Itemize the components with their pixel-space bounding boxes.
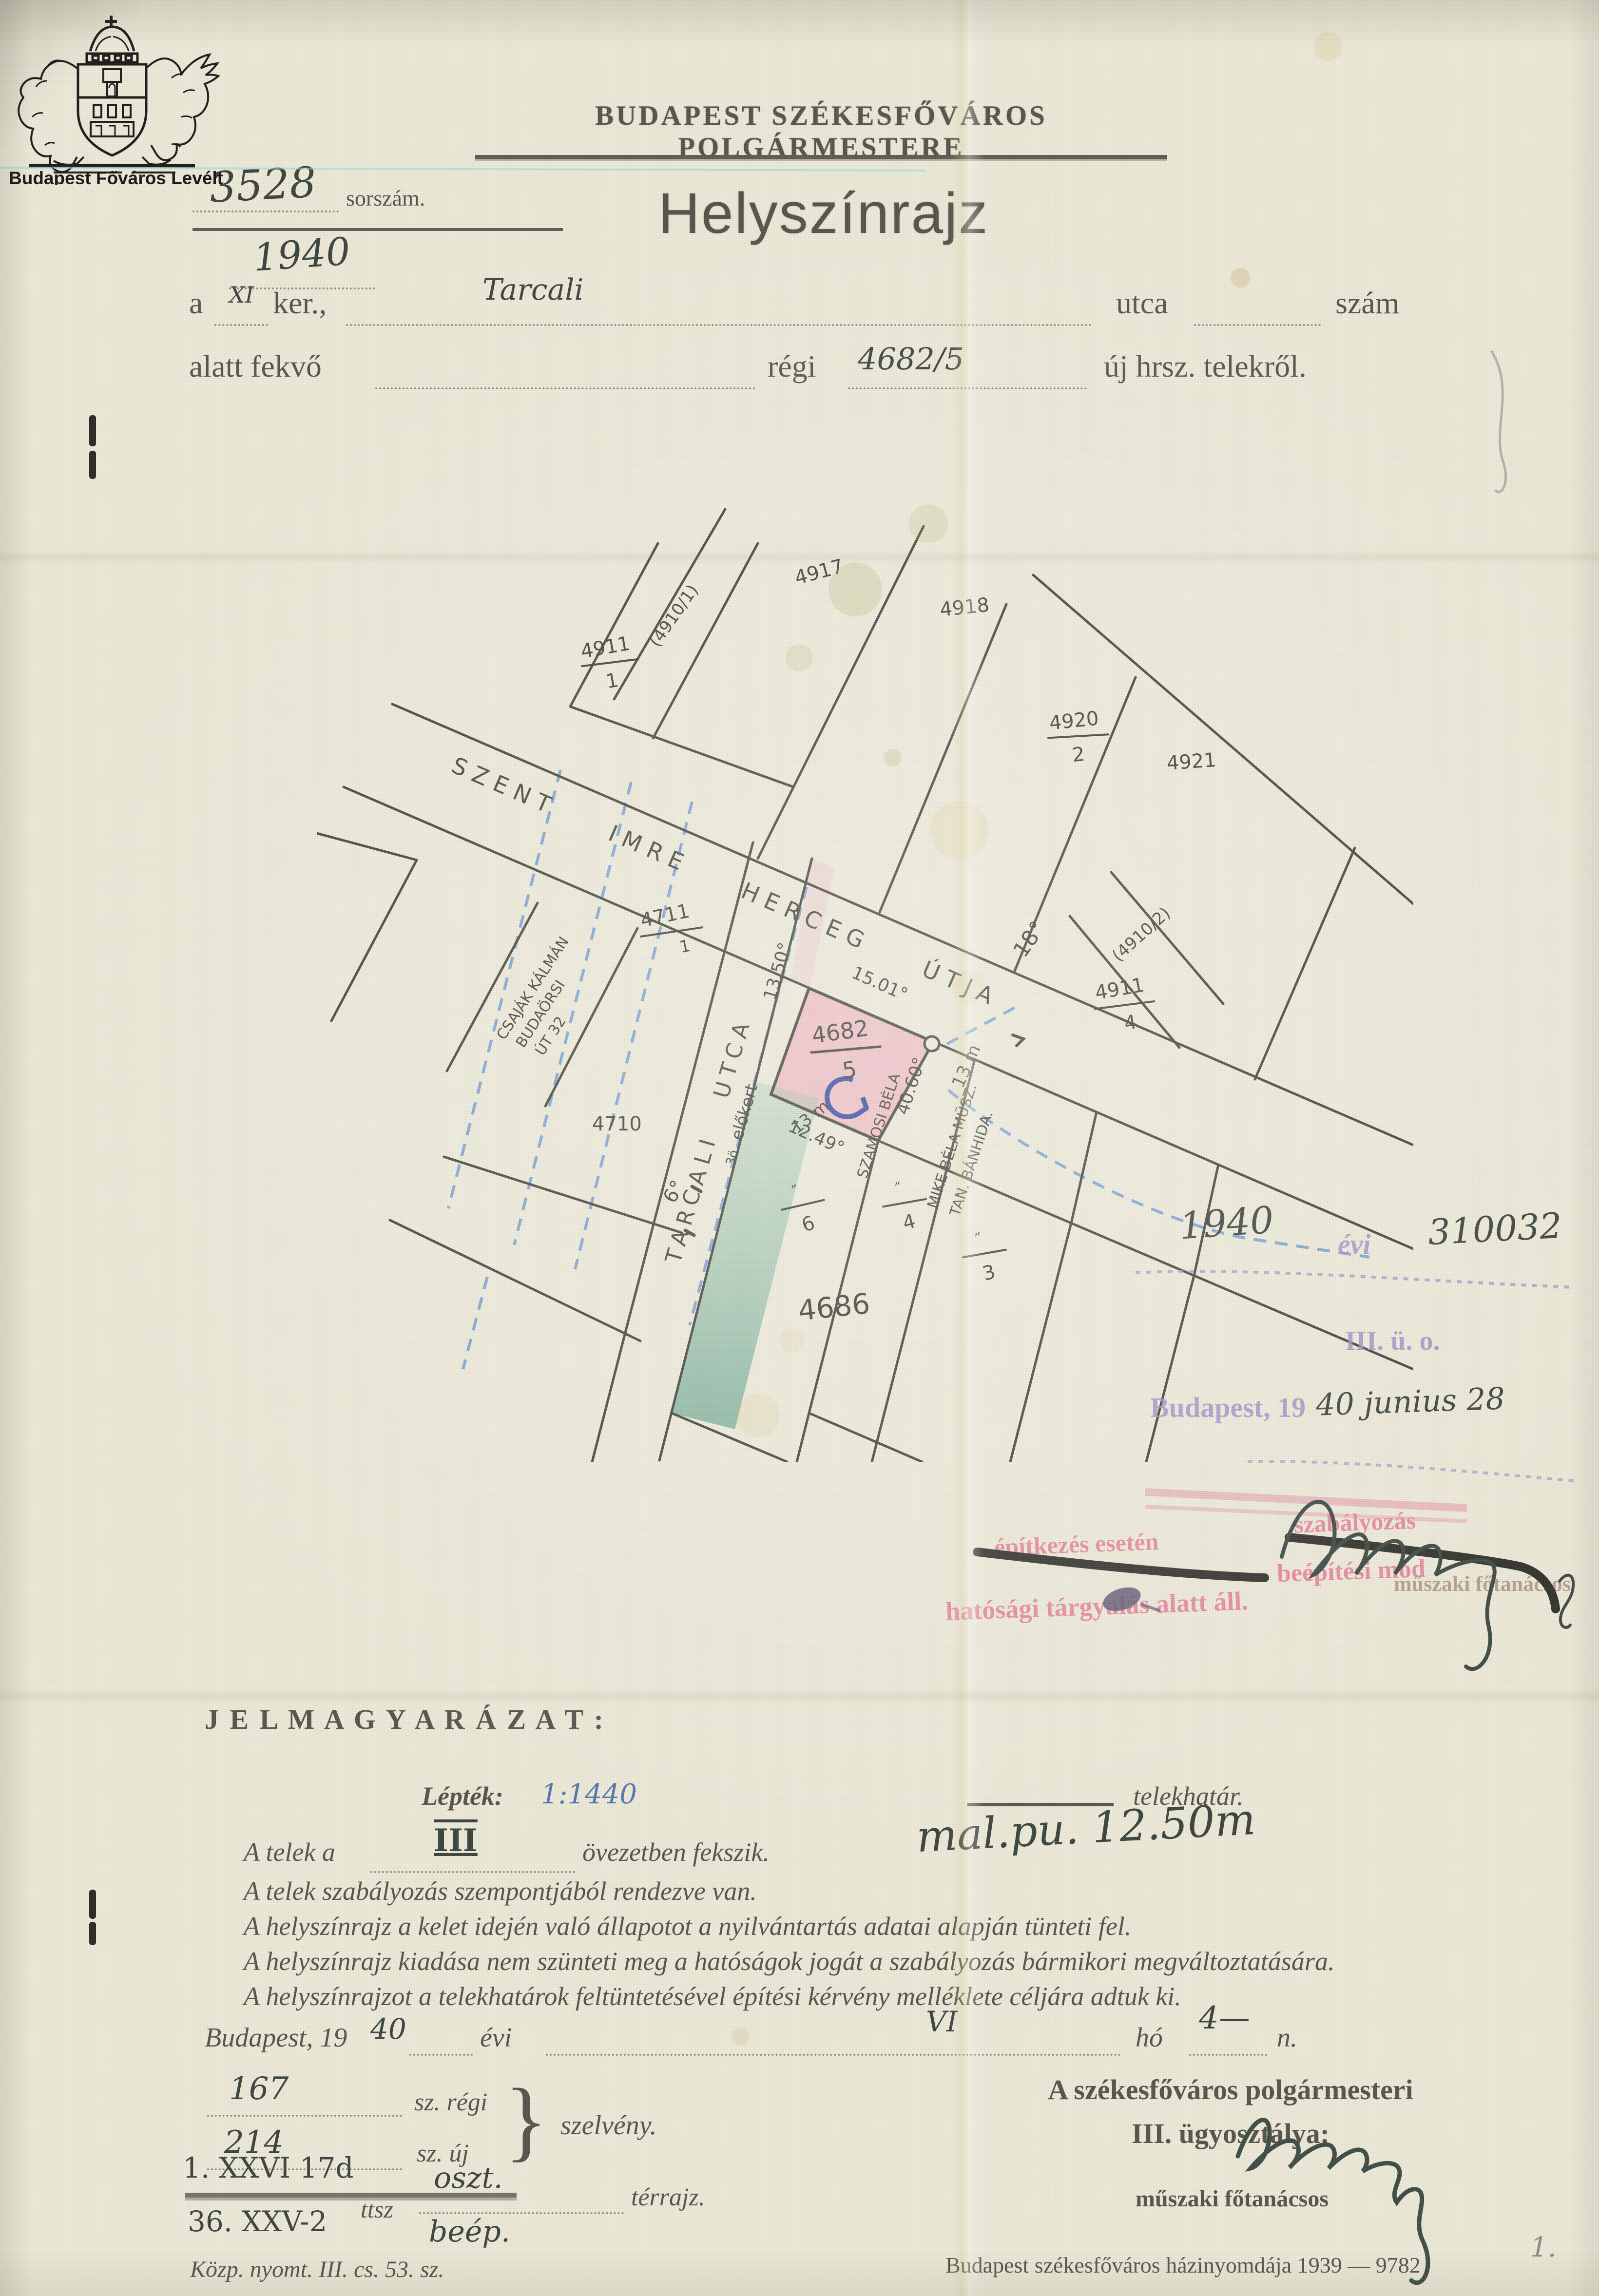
serial-number: 3528 xyxy=(209,158,318,212)
page-title: Helyszínrajz xyxy=(585,180,1062,247)
code-ttsz: ttsz xyxy=(361,2195,393,2223)
form-line2: alatt fekvő xyxy=(189,348,322,384)
annotation-file-number: 310032 xyxy=(1427,1205,1563,1253)
svg-text:4920: 4920 xyxy=(1048,707,1100,734)
office-title: BUDAPEST SZÉKESFŐVÁROS POLGÁRMESTERE xyxy=(475,100,1167,163)
district-dotted xyxy=(214,324,268,326)
plot-labels: 4917 (4910/1) 4911 1 4918 4920 2 4921 (4… xyxy=(577,555,1217,1327)
section-brace: } xyxy=(504,2068,548,2172)
legend-heading: J E L M A G Y A R Á Z A T : xyxy=(205,1703,605,1736)
purple-underline-2 xyxy=(1248,1461,1579,1481)
serial-rule xyxy=(193,228,563,231)
dateline-n: n. xyxy=(1277,2022,1297,2053)
dateline-year: 40 xyxy=(370,2012,406,2046)
section-old-value: 167 xyxy=(229,2071,289,2107)
footer-right: Budapest székesfőváros házinyomdája 1939… xyxy=(945,2252,1421,2278)
legend-line4: A helyszínrajz kiadása nem szünteti meg … xyxy=(244,1946,1334,1976)
svg-text:4: 4 xyxy=(900,1210,918,1235)
svg-text:2: 2 xyxy=(1071,743,1086,766)
dateline-month: VI xyxy=(926,2005,958,2038)
scale-label: Lépték: xyxy=(422,1781,503,1811)
dateline-dot1 xyxy=(409,2054,473,2056)
plot-4711-1: 4711 1 xyxy=(635,898,708,965)
street-dotted xyxy=(346,324,1092,326)
form-street-name: Tarcali xyxy=(482,273,584,307)
dept-stamp: III. ü. o. xyxy=(1345,1325,1440,1357)
budapest-date-stamp: Budapest, 19 xyxy=(1150,1391,1306,1424)
dateline-evi: évi xyxy=(480,2022,512,2053)
line2-dotted xyxy=(375,387,755,389)
svg-text:4: 4 xyxy=(1122,1011,1138,1035)
code-fill1: oszt. xyxy=(434,2161,503,2195)
street-width-18: 18° xyxy=(1008,917,1051,962)
parcel-dotted xyxy=(848,387,1087,389)
annotation-date: 40 junius 28 xyxy=(1315,1380,1505,1422)
svg-text:6: 6 xyxy=(799,1211,817,1237)
staple-marks xyxy=(89,415,96,1945)
form-utca: utca xyxy=(1116,285,1168,321)
section-szelveny: szelvény. xyxy=(560,2110,656,2141)
annotation-year: 1940 xyxy=(1178,1198,1275,1247)
plot-4917: 4917 xyxy=(792,555,846,590)
svg-text:1: 1 xyxy=(678,936,692,957)
coat-of-arms-icon xyxy=(19,16,218,172)
svg-text:1: 1 xyxy=(604,669,620,693)
pink-stamp-bar xyxy=(1145,1492,1467,1508)
zone-post: övezetben fekszik. xyxy=(582,1837,770,1867)
owner-mike: MIKE BÉLA MŰSZ. TAN. BÁNHIDA. xyxy=(923,1081,997,1219)
plot-4910-1: (4910/1) xyxy=(646,581,703,651)
szam-dotted xyxy=(1194,324,1321,326)
approval-line2: III. ügyosztálya: xyxy=(950,2117,1511,2150)
footer-page-number: 1. xyxy=(1530,2232,1556,2263)
svg-text:4911: 4911 xyxy=(579,632,632,663)
zone-dotted xyxy=(370,1871,575,1873)
archive-logo: Budapest Főváros Levéltára xyxy=(0,5,224,185)
site-plan-map: SZENT IMRE HERCEG ÚTJA TARCALI UTCA 4917… xyxy=(317,497,1413,1462)
legend-hand-note: mal.pu. 12.50m xyxy=(915,1794,1257,1862)
code-dotted xyxy=(419,2212,624,2214)
dateline-ho: hó xyxy=(1136,2022,1163,2053)
svg-text:3: 3 xyxy=(980,1261,998,1285)
dateline-day: 4— xyxy=(1199,2000,1250,2036)
approval-counselor: műszaki főtanácsos xyxy=(1136,2185,1329,2212)
plot-4686: 4686 xyxy=(796,1287,871,1327)
code-row2: 36. XXV-2 xyxy=(188,2205,327,2238)
scale-value: 1:1440 xyxy=(541,1779,637,1810)
horizontal-crease xyxy=(0,1689,1599,1703)
office-title-underline xyxy=(475,155,1167,159)
plot-4911-4: 4911 4 xyxy=(1089,973,1160,1040)
svg-text:″: ″ xyxy=(973,1229,984,1250)
dateline-dot2 xyxy=(546,2054,1121,2056)
form-regi: régi xyxy=(768,348,816,384)
section-old-dotted xyxy=(207,2115,402,2117)
plot-4921: 4921 xyxy=(1166,749,1217,775)
svg-text:″: ″ xyxy=(893,1179,905,1199)
measure-13-50: 13.50° xyxy=(760,940,795,1003)
code-terrajz: térrajz. xyxy=(631,2183,705,2212)
zone-pre: A telek a xyxy=(244,1837,335,1867)
serial-year: 1940 xyxy=(252,230,351,280)
plot-4918: 4918 xyxy=(939,594,990,621)
svg-text:4711: 4711 xyxy=(638,900,692,932)
stamp-struck-line2: szabályozás xyxy=(1293,1506,1416,1539)
form-line2-end: új hrsz. telekről. xyxy=(1104,348,1307,384)
code-row1: 1. XXVI 17d xyxy=(183,2151,354,2184)
archive-name: Budapest Főváros Levéltára xyxy=(9,168,224,185)
code-fill2: beép. xyxy=(429,2215,510,2249)
serial-label: sorszám. xyxy=(346,185,425,211)
approval-line1: A székesfőváros polgármesteri xyxy=(950,2073,1511,2106)
plot-ditto-3: ″ 3 xyxy=(956,1224,1014,1289)
stamp-line2: beépítési mód xyxy=(1276,1554,1426,1588)
dateline-city: Budapest, 19 xyxy=(205,2022,347,2053)
stamp-struck-line1: építkezés esetén xyxy=(994,1527,1159,1561)
form-ker: ker., xyxy=(273,285,327,321)
dateline-dot3 xyxy=(1189,2054,1267,2056)
form-prefix: a xyxy=(189,285,203,321)
legend-line3: A helyszínrajz a kelet idején való állap… xyxy=(244,1911,1131,1941)
legend-line2: A telek szabályozás szempontjából rendez… xyxy=(244,1876,757,1906)
scanned-document-page: { "archive": { "name": "Budapest Főváros… xyxy=(0,0,1599,2296)
form-district: XI xyxy=(229,282,254,308)
form-szam: szám xyxy=(1335,285,1400,321)
serial-dotted-line xyxy=(193,210,339,212)
pencil-flourish xyxy=(1491,351,1506,492)
plot-4710: 4710 xyxy=(592,1113,642,1135)
evi-stamp: évi xyxy=(1338,1228,1371,1261)
blue-13m-right: 13 m xyxy=(948,1042,985,1091)
zone-value: III xyxy=(434,1822,478,1859)
legend-line5: A helyszínrajzot a telekhatárok feltünte… xyxy=(244,1981,1181,2011)
stamp-line3: hatósági tárgyalás alatt áll. xyxy=(945,1586,1249,1626)
section-old-label: sz. régi xyxy=(414,2088,487,2117)
corner-arc-mark xyxy=(925,1036,939,1051)
form-parcel: 4682/5 xyxy=(858,341,964,377)
footer-left: Közp. nyomt. III. cs. 53. sz. xyxy=(190,2256,444,2283)
